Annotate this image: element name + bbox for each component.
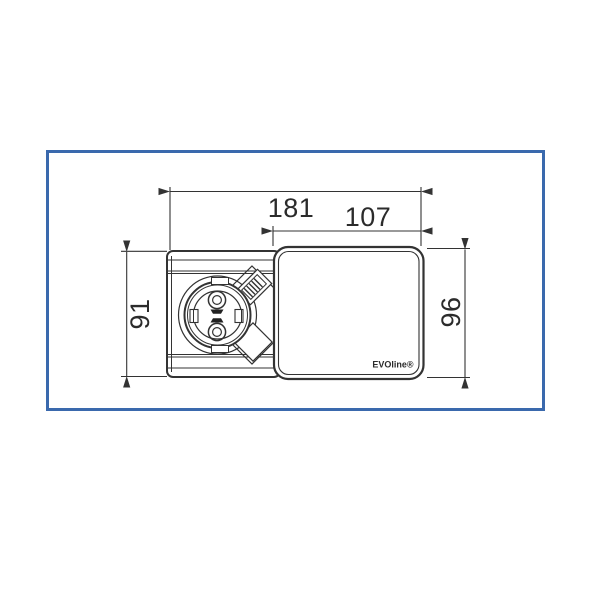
evoline-logo: EVOline®: [372, 360, 414, 370]
dim-label-96: 96: [436, 296, 466, 327]
dimension-cover-height: 96: [436, 250, 466, 378]
dim-label-91: 91: [125, 298, 155, 329]
cover-plate: EVOline®: [274, 247, 424, 379]
socket-top-tab: [212, 278, 229, 285]
dim-label-181: 181: [268, 193, 315, 223]
dim-label-107: 107: [345, 202, 392, 232]
dimension-body-height: 91: [125, 252, 155, 376]
technical-drawing: EVOline® 181 107: [0, 0, 600, 600]
screenshot-canvas: EVOline® 181 107: [0, 0, 600, 600]
socket-bottom-tab: [212, 346, 229, 353]
